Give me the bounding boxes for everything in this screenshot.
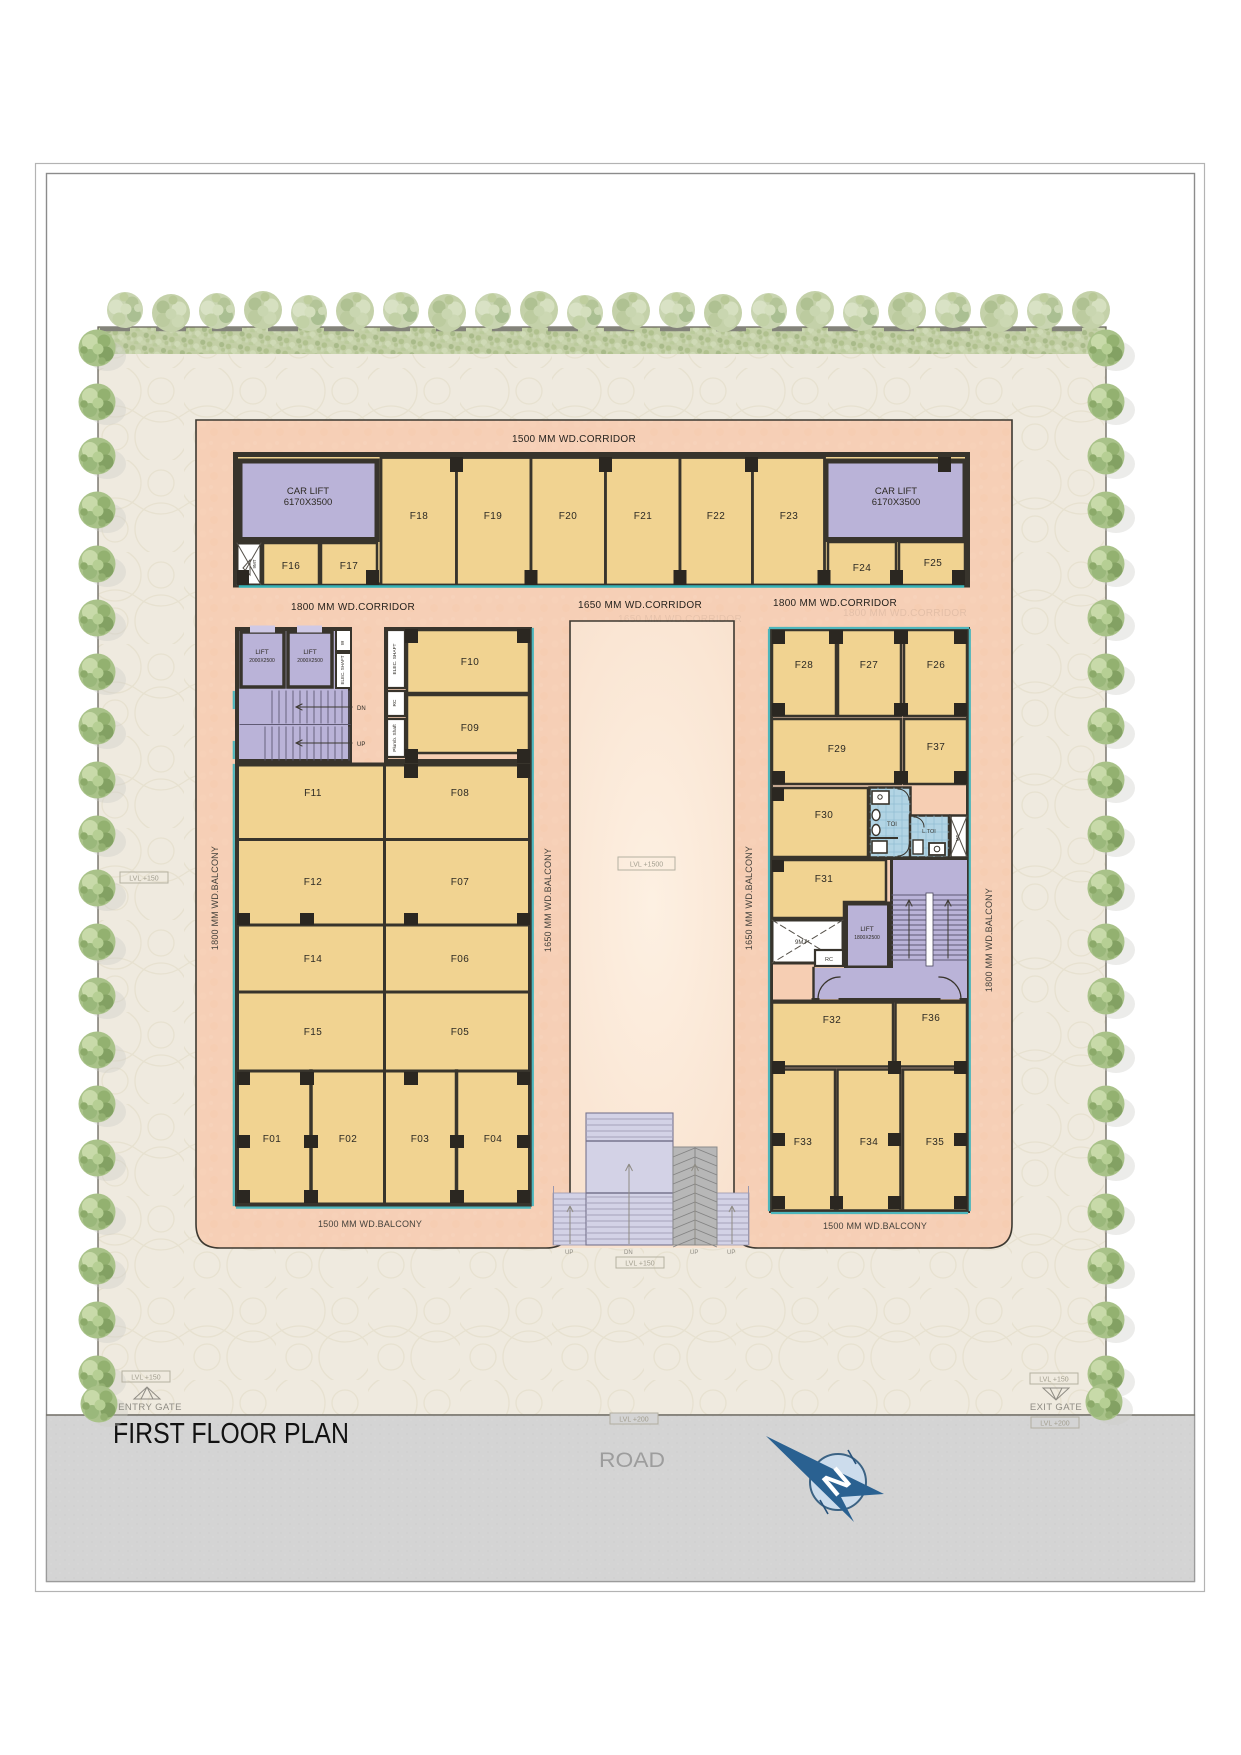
svg-text:LVL +150: LVL +150 <box>129 876 158 883</box>
svg-text:1650 MM WD.CORRIDOR: 1650 MM WD.CORRIDOR <box>618 614 742 625</box>
svg-text:1650 MM WD.BALCONY: 1650 MM WD.BALCONY <box>744 846 754 950</box>
svg-text:F02: F02 <box>339 1134 357 1145</box>
svg-text:LVL +150: LVL +150 <box>131 1375 160 1382</box>
svg-text:F26: F26 <box>927 660 945 671</box>
svg-text:F37: F37 <box>927 742 945 753</box>
svg-text:CAR LIFT: CAR LIFT <box>287 486 329 497</box>
svg-text:F27: F27 <box>860 660 878 671</box>
svg-text:LIFT: LIFT <box>303 649 316 656</box>
svg-text:F16: F16 <box>282 561 300 572</box>
svg-text:LVL +150: LVL +150 <box>1039 1377 1068 1384</box>
svg-text:F09: F09 <box>461 723 479 734</box>
svg-text:ELEC. SHAFT: ELEC. SHAFT <box>340 655 345 684</box>
svg-text:F08: F08 <box>451 788 469 799</box>
svg-text:UP: UP <box>690 1250 698 1256</box>
svg-text:6170X3500: 6170X3500 <box>284 497 333 508</box>
svg-text:F19: F19 <box>484 511 502 522</box>
svg-text:LVL +1500: LVL +1500 <box>630 862 663 869</box>
svg-text:F31: F31 <box>815 874 833 885</box>
svg-text:DN: DN <box>357 706 366 712</box>
svg-text:LVL +200: LVL +200 <box>1040 1421 1069 1428</box>
svg-text:RC: RC <box>392 699 398 706</box>
svg-text:DN: DN <box>624 1250 633 1256</box>
svg-text:F32: F32 <box>823 1015 841 1026</box>
svg-text:F35: F35 <box>926 1137 944 1148</box>
svg-text:F11: F11 <box>304 788 322 799</box>
svg-text:1500 MM WD.CORRIDOR: 1500 MM WD.CORRIDOR <box>512 434 636 445</box>
svg-text:UP: UP <box>727 1250 735 1256</box>
svg-text:F24: F24 <box>853 563 871 574</box>
svg-text:ENTRY GATE: ENTRY GATE <box>118 1402 182 1413</box>
svg-text:6170X3500: 6170X3500 <box>872 497 921 508</box>
svg-text:1800X2500: 1800X2500 <box>854 935 880 941</box>
svg-text:F33: F33 <box>794 1137 812 1148</box>
svg-text:RC: RC <box>825 957 833 963</box>
svg-text:FIRST FLOOR PLAN: FIRST FLOOR PLAN <box>113 1418 349 1450</box>
svg-text:F21: F21 <box>634 511 652 522</box>
svg-text:2000X2500: 2000X2500 <box>249 658 275 664</box>
svg-text:L.TOI: L.TOI <box>922 829 936 835</box>
svg-text:UP: UP <box>565 1250 573 1256</box>
svg-text:1800 MM WD.CORRIDOR: 1800 MM WD.CORRIDOR <box>291 602 415 613</box>
svg-text:1800 MM WD.BALCONY: 1800 MM WD.BALCONY <box>210 846 220 950</box>
svg-text:F15: F15 <box>304 1027 322 1038</box>
svg-text:1650 MM WD.CORRIDOR: 1650 MM WD.CORRIDOR <box>578 600 702 611</box>
svg-text:LIFT: LIFT <box>860 926 873 933</box>
svg-text:UP: UP <box>357 742 365 748</box>
svg-text:F36: F36 <box>922 1013 940 1024</box>
svg-text:9MT: 9MT <box>252 559 257 568</box>
svg-text:Plumb. Shaft: Plumb. Shaft <box>392 724 398 752</box>
svg-text:EXIT GATE: EXIT GATE <box>1030 1402 1082 1413</box>
svg-text:CAR LIFT: CAR LIFT <box>875 486 917 497</box>
svg-text:1650 MM WD.BALCONY: 1650 MM WD.BALCONY <box>543 848 553 952</box>
svg-text:2000X2500: 2000X2500 <box>297 658 323 664</box>
svg-text:LVL +150: LVL +150 <box>625 1261 654 1268</box>
svg-text:F01: F01 <box>263 1134 281 1145</box>
svg-text:ELEC. SHAFT: ELEC. SHAFT <box>392 643 398 674</box>
svg-text:F07: F07 <box>451 877 469 888</box>
svg-text:F22: F22 <box>707 511 725 522</box>
svg-text:F25: F25 <box>924 558 942 569</box>
svg-text:MT: MT <box>955 835 960 842</box>
svg-text:F23: F23 <box>780 511 798 522</box>
svg-text:1500 MM WD.BALCONY: 1500 MM WD.BALCONY <box>823 1221 927 1231</box>
svg-text:1800 MM WD.CORRIDOR: 1800 MM WD.CORRIDOR <box>843 608 967 619</box>
svg-text:F29: F29 <box>828 744 846 755</box>
svg-text:LVL +200: LVL +200 <box>619 1417 648 1424</box>
svg-text:F18: F18 <box>410 511 428 522</box>
svg-text:9MT: 9MT <box>795 940 807 946</box>
svg-text:F06: F06 <box>451 954 469 965</box>
svg-text:F04: F04 <box>484 1134 502 1145</box>
svg-text:F05: F05 <box>451 1027 469 1038</box>
svg-text:1500 MM WD.BALCONY: 1500 MM WD.BALCONY <box>318 1219 422 1229</box>
svg-text:F34: F34 <box>860 1137 878 1148</box>
svg-text:F12: F12 <box>304 877 322 888</box>
svg-text:F28: F28 <box>795 660 813 671</box>
svg-text:F10: F10 <box>461 657 479 668</box>
svg-text:F03: F03 <box>411 1134 429 1145</box>
svg-text:F17: F17 <box>340 561 358 572</box>
svg-text:ROAD: ROAD <box>599 1449 665 1472</box>
svg-text:F20: F20 <box>559 511 577 522</box>
svg-text:LIFT: LIFT <box>255 649 268 656</box>
svg-text:F30: F30 <box>815 810 833 821</box>
svg-text:1800 MM WD.BALCONY: 1800 MM WD.BALCONY <box>984 888 994 992</box>
svg-text:TOI: TOI <box>887 822 897 828</box>
svg-text:F14: F14 <box>304 954 322 965</box>
